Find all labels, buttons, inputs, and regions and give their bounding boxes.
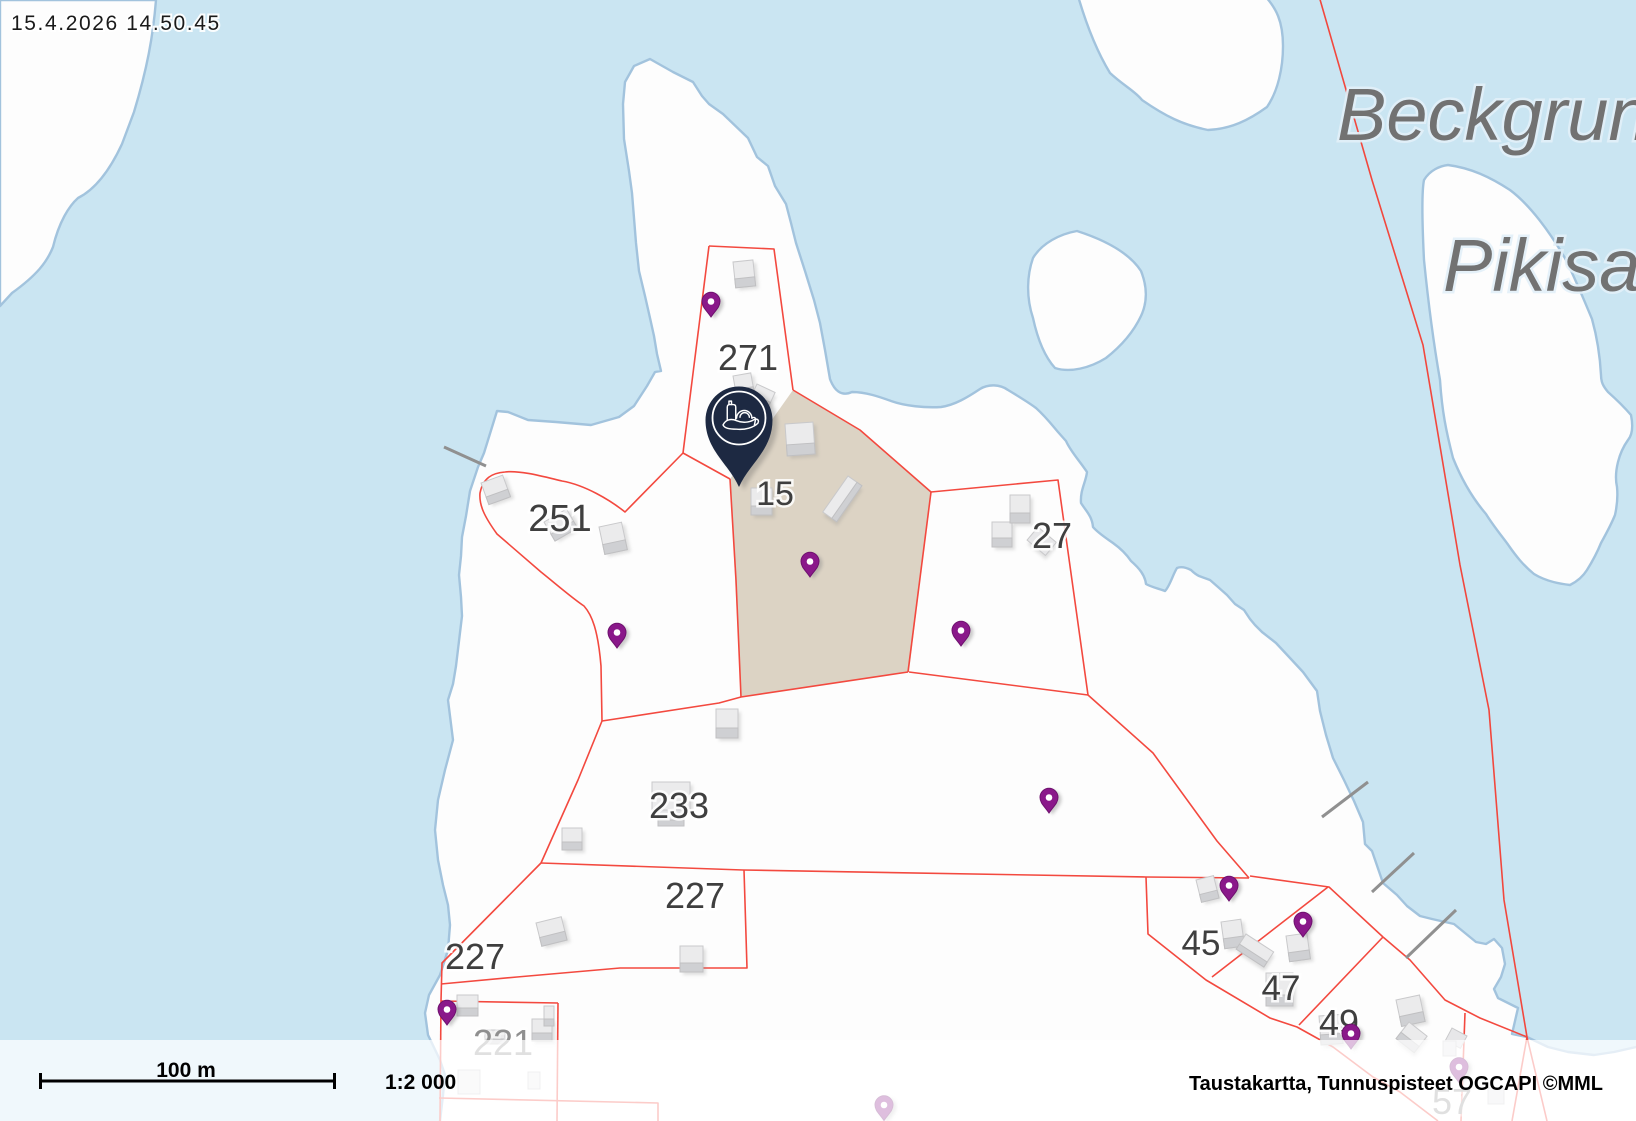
svg-text:227: 227 (445, 936, 505, 977)
svg-text:251: 251 (528, 498, 591, 540)
svg-text:227: 227 (665, 875, 725, 916)
svg-text:Beckgrundet: Beckgrundet (1337, 73, 1636, 156)
svg-text:27: 27 (1032, 515, 1072, 556)
svg-text:47: 47 (1262, 969, 1301, 1008)
svg-text:271: 271 (718, 337, 778, 378)
svg-text:Taustakartta, Tunnuspisteet OG: Taustakartta, Tunnuspisteet OGCAPI ©MML (1189, 1073, 1603, 1095)
svg-text:15.4.2026 14.50.45: 15.4.2026 14.50.45 (11, 12, 221, 35)
svg-text:Pikisaari: Pikisaari (1443, 224, 1636, 307)
svg-text:15: 15 (756, 475, 794, 513)
svg-text:1:2 000: 1:2 000 (385, 1071, 456, 1094)
svg-text:45: 45 (1182, 924, 1221, 963)
svg-text:100 m: 100 m (156, 1059, 216, 1082)
svg-text:233: 233 (649, 785, 709, 826)
